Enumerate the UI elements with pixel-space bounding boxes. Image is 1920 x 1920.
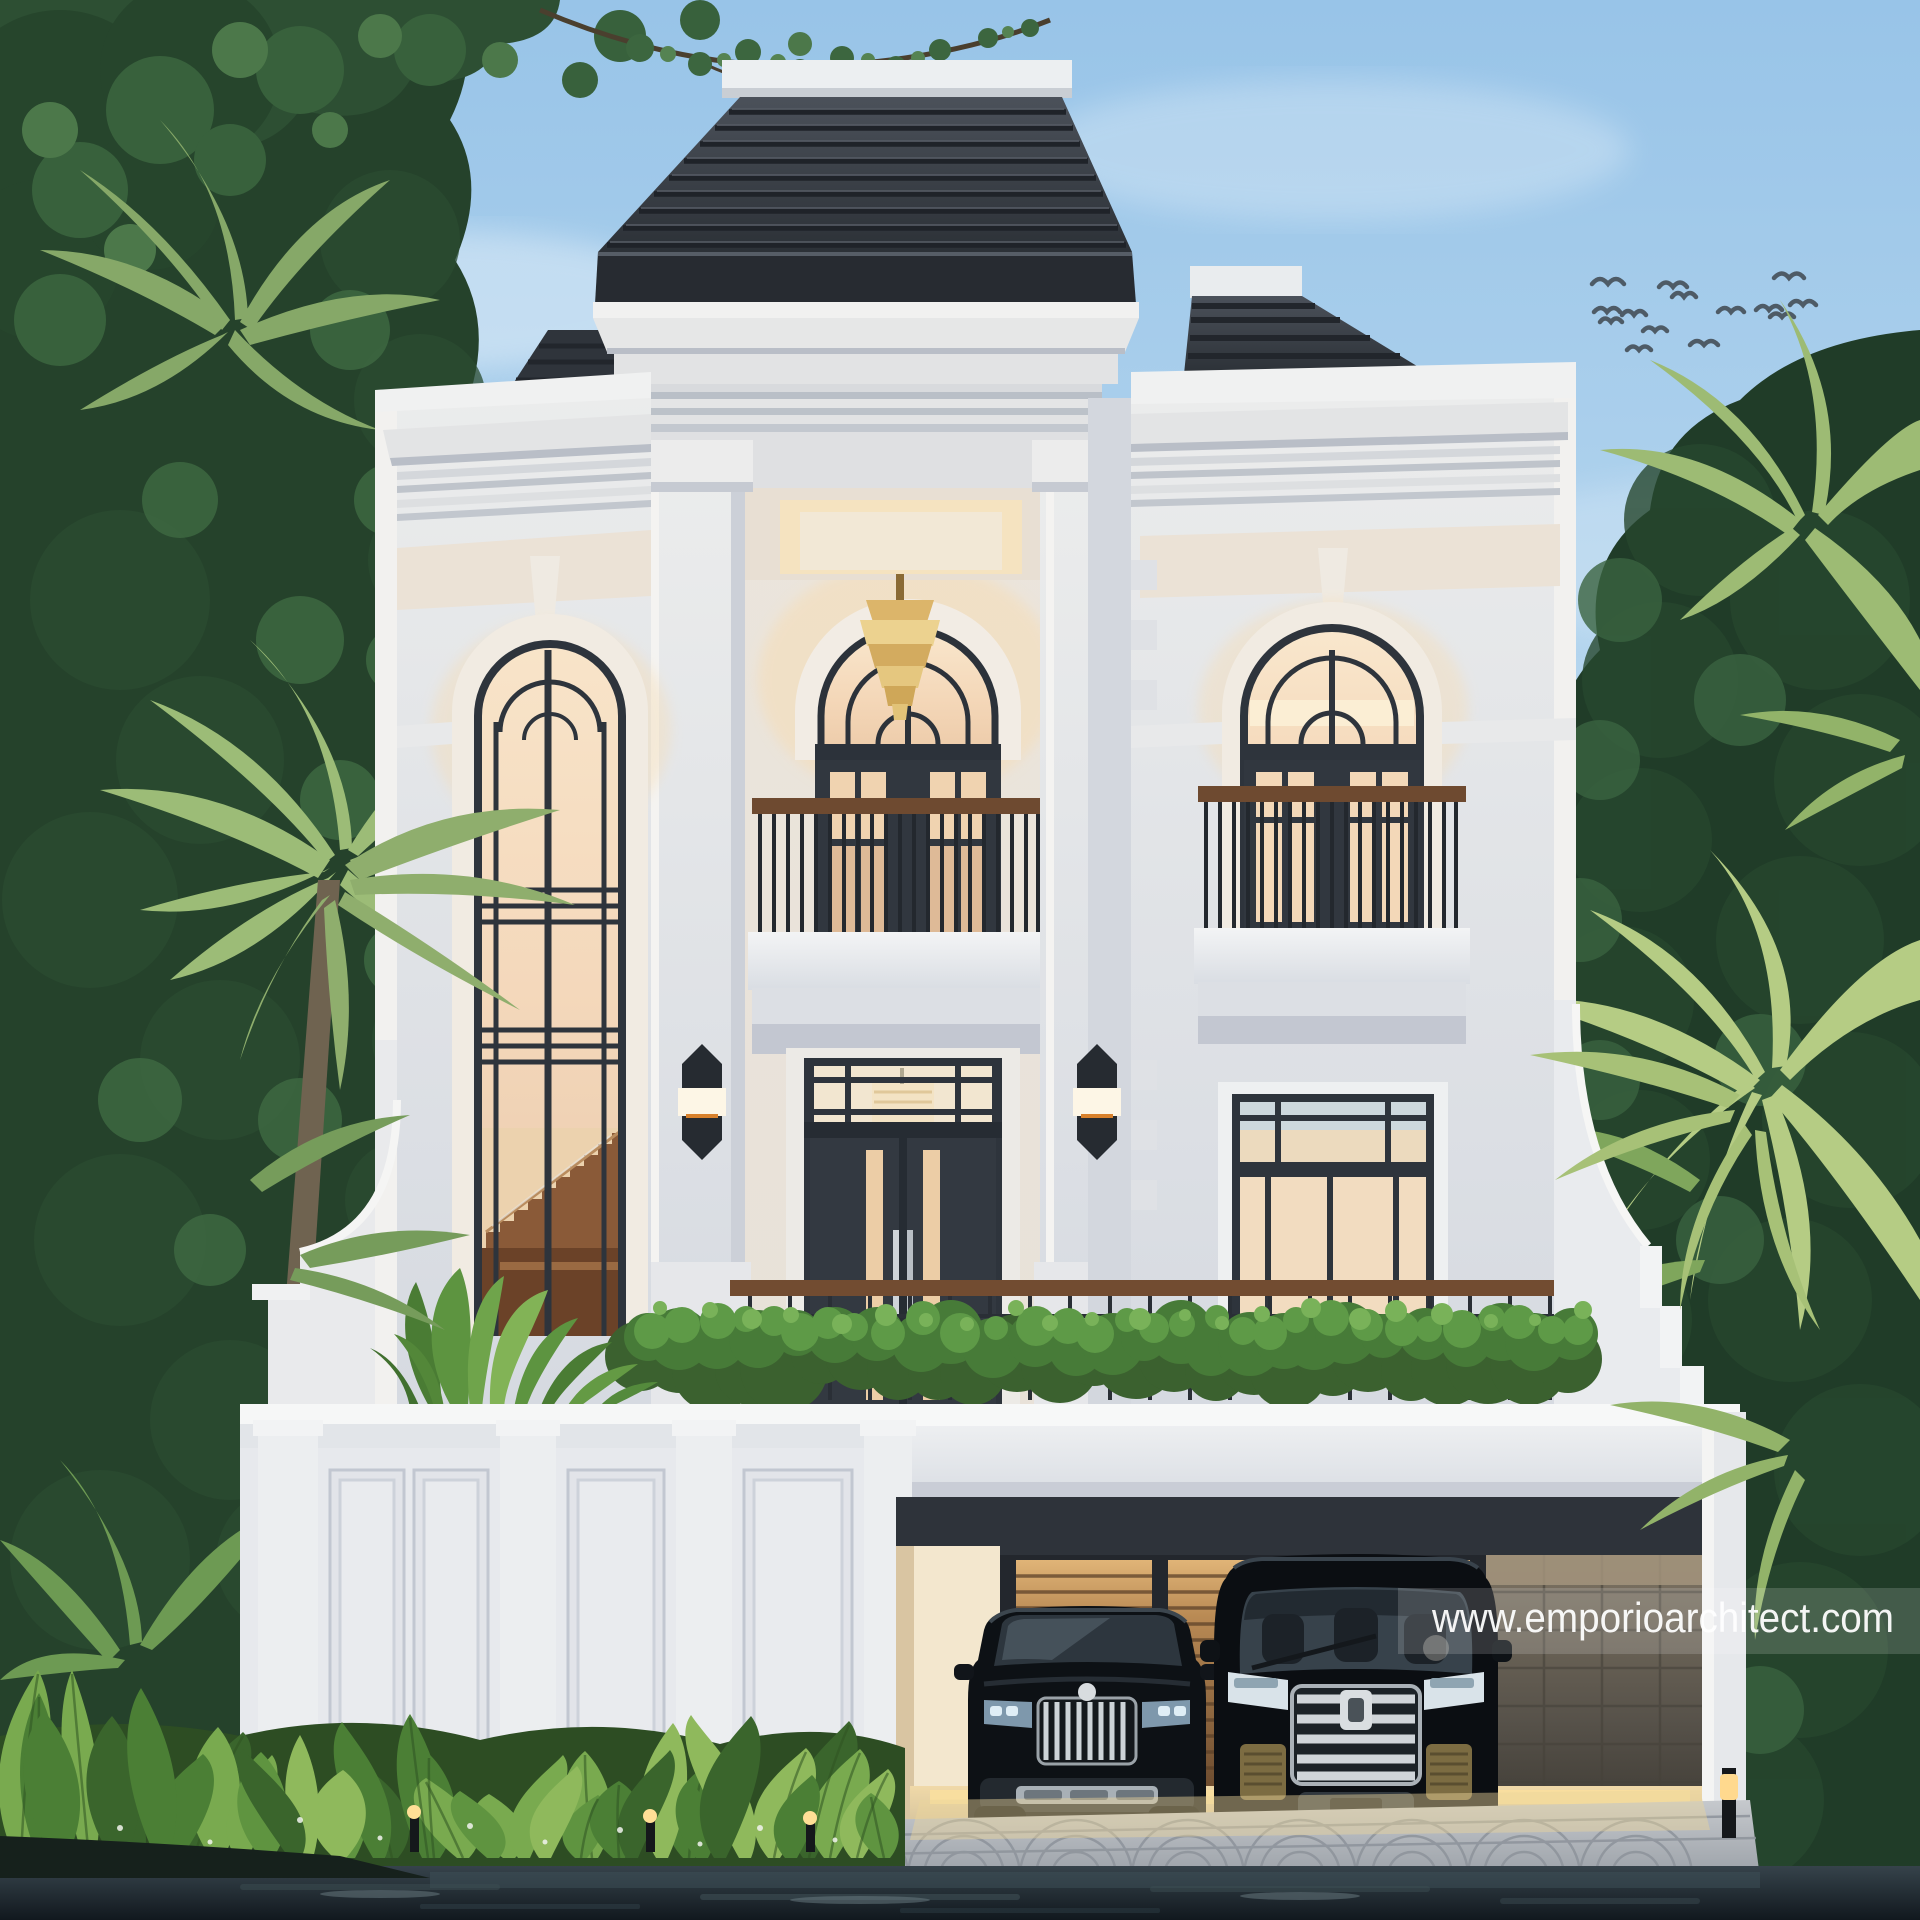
svg-text:www.emporioarchitect.com: www.emporioarchitect.com (1431, 1594, 1894, 1641)
